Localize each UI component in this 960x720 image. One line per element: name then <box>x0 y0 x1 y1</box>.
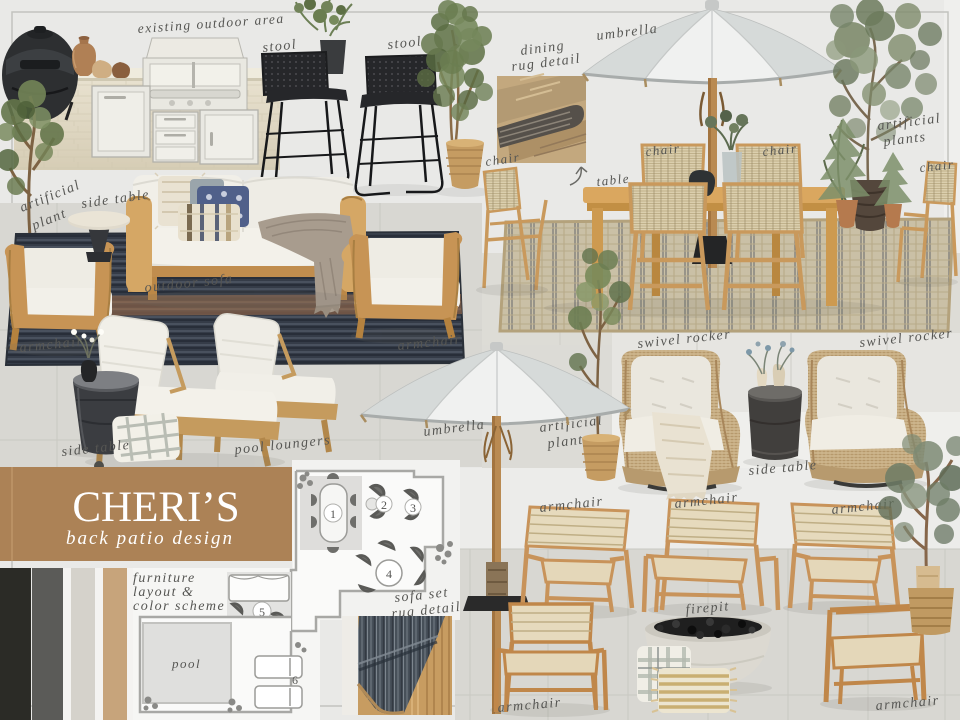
svg-text:2: 2 <box>381 498 387 512</box>
svg-text:6: 6 <box>292 673 298 687</box>
svg-text:1: 1 <box>330 507 336 521</box>
svg-text:furniture: furniture <box>133 571 196 586</box>
svg-text:CHERI’S: CHERI’S <box>72 484 239 531</box>
svg-text:layout &: layout & <box>133 585 194 600</box>
svg-text:pool: pool <box>171 656 201 671</box>
svg-text:4: 4 <box>386 567 392 581</box>
svg-text:3: 3 <box>410 501 416 515</box>
svg-text:back patio design: back patio design <box>66 528 234 549</box>
svg-text:color scheme: color scheme <box>133 599 225 614</box>
